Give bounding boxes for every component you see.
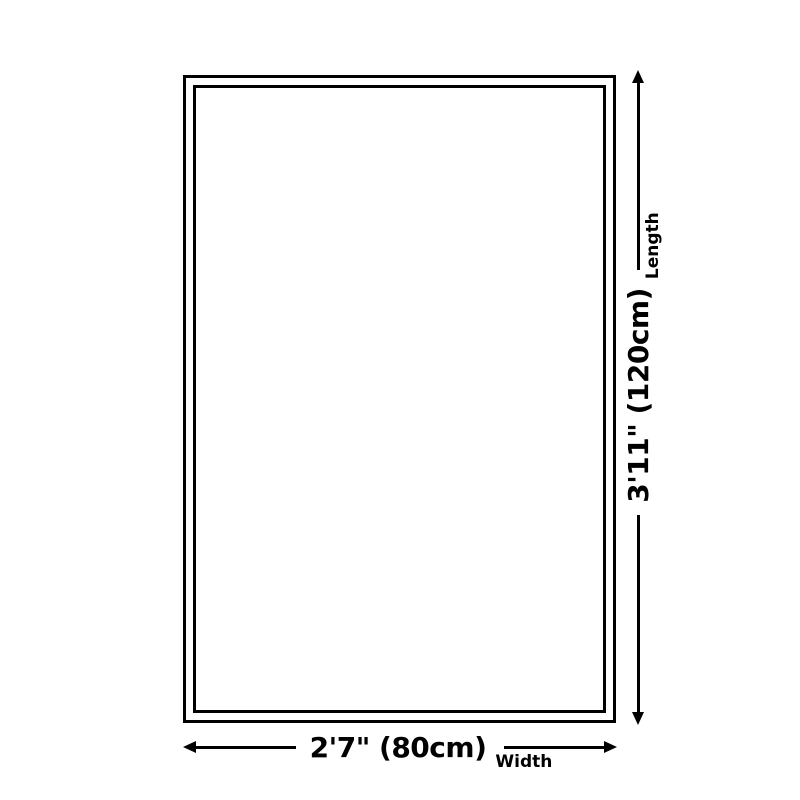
length-dimension-line-top (637, 83, 640, 270)
width-dimension-line-right (504, 746, 604, 749)
arrow-right-icon (604, 741, 617, 753)
length-dimension-line-bottom (637, 515, 640, 712)
product-outline-outer (183, 75, 616, 723)
length-dimension: 3'11" (120cm)Length (624, 70, 652, 725)
length-value: 3'11" (120cm) (622, 288, 655, 503)
product-outline-inner (193, 85, 606, 713)
width-caption: Width (495, 752, 552, 772)
width-dimension-label: 2'7" (80cm)Width (296, 731, 505, 764)
length-dimension-label: 3'11" (120cm)Length (622, 282, 655, 503)
arrow-down-icon (632, 712, 644, 725)
width-dimension: 2'7" (80cm)Width (183, 728, 617, 766)
length-caption: Length (643, 212, 663, 279)
width-dimension-line-left (196, 746, 296, 749)
length-label-area: 3'11" (120cm)Length (624, 270, 652, 515)
size-diagram: 3'11" (120cm)Length 2'7" (80cm)Width (0, 0, 800, 800)
arrow-left-icon (183, 741, 196, 753)
arrow-up-icon (632, 70, 644, 83)
width-value: 2'7" (80cm) (310, 731, 487, 764)
